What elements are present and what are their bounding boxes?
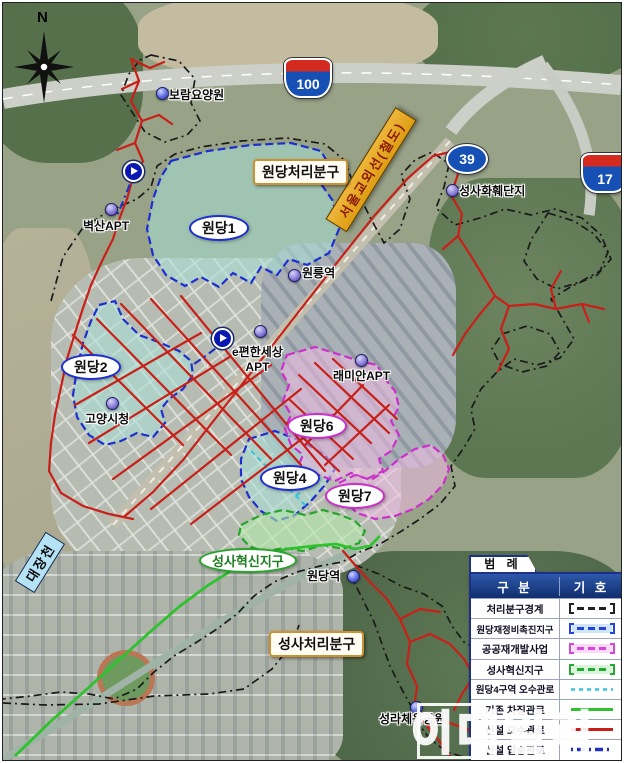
poi-marker <box>156 87 169 100</box>
legend-row-label: 원당재정비촉진지구 <box>471 619 560 638</box>
poi-label-boram-nursing-home: 보람요양원 <box>169 86 224 103</box>
poi-marker <box>106 397 119 410</box>
zone-label-seongsa-innovation: 성사혁신지구 <box>199 548 297 573</box>
legend-header-row: 구 분 기 호 <box>471 574 622 598</box>
poi-marker <box>288 269 301 282</box>
expressway-shield-17: 17 <box>581 153 622 193</box>
zone-label-wondang6: 원당6 <box>287 413 347 439</box>
manhole-pump-station-icon <box>123 161 144 182</box>
poi-marker <box>355 354 368 367</box>
poi-label-seongsa-flower-complex: 성사화훼단지 <box>459 182 525 199</box>
zone-label-wondang1: 원당1 <box>189 215 249 241</box>
legend-title: 범 례 <box>469 555 537 572</box>
legend-col-symbol: 기 호 <box>560 577 622 596</box>
legend-row: 공공재개발사업 <box>471 638 622 658</box>
legend-row: 원당4구역 오수관로 <box>471 679 622 699</box>
legend-row: 성사혁신지구 <box>471 659 622 679</box>
zone-label-wondang2: 원당2 <box>61 354 121 380</box>
poi-marker <box>347 570 360 583</box>
satellite-map: N 100 39 17 서울교외선( <box>2 2 622 761</box>
poi-marker <box>446 184 459 197</box>
national-route-shield-39: 39 <box>446 144 488 174</box>
legend-row-label: 처리분구경계 <box>471 599 560 618</box>
legend-row: 처리분구경계 <box>471 598 622 618</box>
dashed-bracket-magenta-icon <box>560 639 622 658</box>
legend-row: 원당재정비촉진지구 <box>471 618 622 638</box>
compass-rose: N <box>11 9 81 114</box>
legend-row-label: 성사혁신지구 <box>471 660 560 679</box>
dashed-bracket-blue-icon <box>560 619 622 638</box>
shield-number: 100 <box>296 76 319 92</box>
poi-label-goyang-city-hall: 고양시청 <box>85 410 129 427</box>
poi-label-epyeonhansesang-apt: e편한세상 APT <box>232 343 283 374</box>
watermark-edaily: 이데일리 <box>411 697 596 761</box>
shield-number: 17 <box>597 171 613 187</box>
district-label-wondang: 원당처리분구 <box>253 159 348 185</box>
shield-number: 39 <box>459 151 475 167</box>
zone-label-wondang4: 원당4 <box>260 465 320 491</box>
poi-marker <box>105 203 118 216</box>
compass-star-icon <box>11 23 81 113</box>
poi-label-raemian-apt: 래미안APT <box>333 367 390 384</box>
poi-label-line2: APT <box>232 360 283 374</box>
legend-row-label: 공공재개발사업 <box>471 639 560 658</box>
district-label-seongsa: 성사처리분구 <box>269 631 364 657</box>
legend-row-label: 신설 맨홀펌프장 <box>471 761 560 762</box>
manhole-pump-station-icon <box>212 328 233 349</box>
poi-label-byeoksan-apt: 벽산APT <box>83 217 129 234</box>
map-figure: N 100 39 17 서울교외선( <box>0 0 624 763</box>
zone-label-wondang7: 원당7 <box>325 483 385 509</box>
manhole-pump-station-icon <box>560 761 622 762</box>
poi-label-wondang-station: 원당역 <box>307 567 340 584</box>
poi-label-wolleung-station: 원릉역 <box>302 264 335 281</box>
dashed-bracket-black-icon <box>560 599 622 618</box>
poi-marker <box>254 325 267 338</box>
dashed-bracket-green-icon <box>560 660 622 679</box>
poi-label-line1: e편한세상 <box>232 345 283 359</box>
legend-col-category: 구 분 <box>471 577 560 596</box>
expressway-shield-100: 100 <box>284 58 332 98</box>
